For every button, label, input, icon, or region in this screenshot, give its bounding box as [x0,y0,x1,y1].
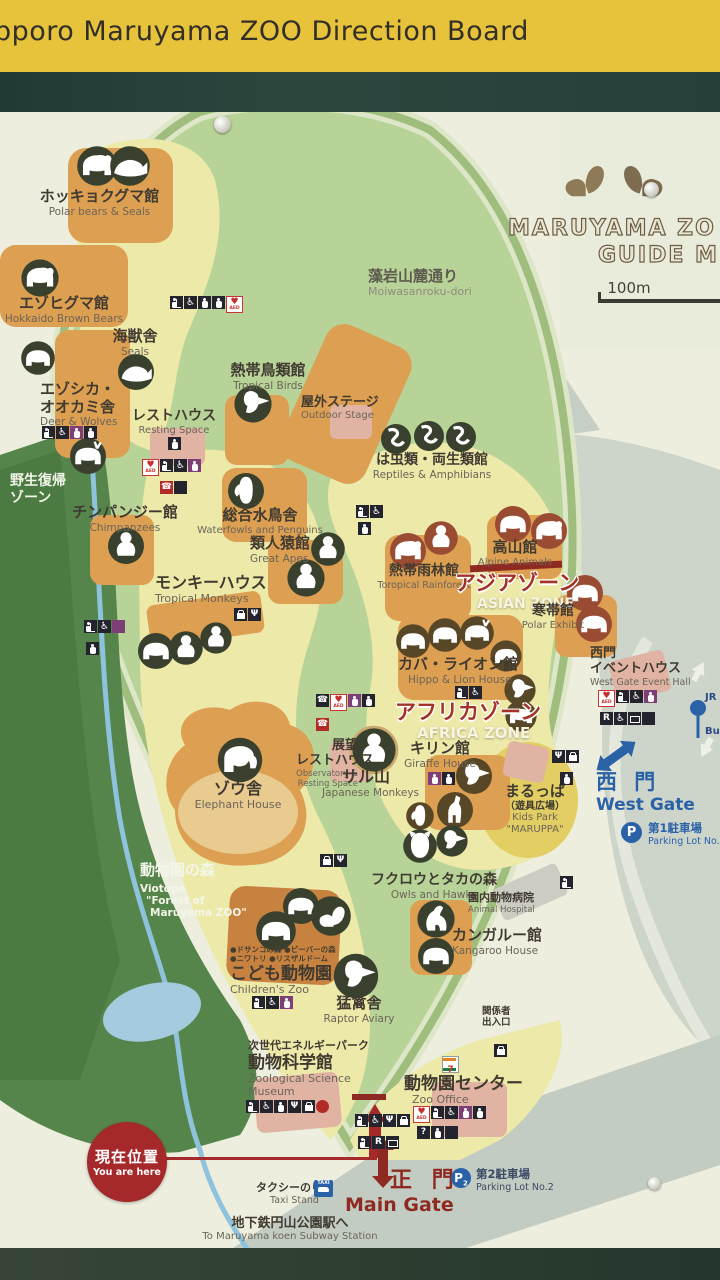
restaurant-icon: Ψ [288,1100,301,1113]
parking2-letter: P [454,1171,463,1185]
amenities-deer-wolves: ♿ [42,426,97,439]
board-title: pporo Maruyama ZOO Direction Board [0,16,529,47]
accessible-icon: ♿ [469,686,482,699]
nursing-icon [348,694,361,707]
fork-glyph: Ψ [251,609,259,619]
vending-icon [174,481,187,494]
west-event-hall-en: West Gate Event Hall [590,677,691,688]
label-giraffe: キリン館 Giraffe House [398,740,482,770]
hippo-lion-ja: カバ・ライオン館 [398,656,518,674]
west-event-hall-ja2: イベントハウス [590,661,691,676]
great-apes-ja: 類人猿館 [250,535,310,553]
label-polar-exhibit: 寒帯館 Polar Exhibit [508,603,598,631]
elephant-ja: ゾウ舎 [182,780,294,799]
alpine-ja: 高山館 [468,539,562,557]
fork-glyph: Ψ [386,1115,394,1125]
gibbon-icon [311,532,345,566]
deer-wolves-ja2: オオカミ舎 [40,399,117,417]
board-bolt [644,182,659,197]
label-zoo-office: 動物園センター Zoo Office [404,1074,523,1107]
shop-icon [302,1100,315,1113]
label-great-apes: 類人猿館 Great Apes [250,535,310,565]
amenities-kids-park2 [560,772,573,785]
toilet-icon [42,426,55,439]
brown-bear-icon [21,259,58,296]
label-west-event-hall: 西門 イベントハウス West Gate Event Hall [590,646,691,688]
aed-text: AED [227,307,242,311]
accessible-icon: ♿ [445,1106,458,1119]
animal-hospital-en: Animal Hospital [468,905,535,915]
parking2-ja: 第2駐車場 [476,1168,554,1182]
raptor-ja: 猛禽舎 [316,995,402,1013]
accessible-icon: ♿ [260,1100,273,1113]
childrens-zoo-legend2: ●ニワトリ ●リスザルドーム [230,955,336,964]
water-fountain-icon [362,694,375,707]
tapir-icon [396,624,430,658]
label-waterfowls: 総合水鳥舎 Waterfowls and Penguins [196,507,324,536]
toilet-icon [356,505,369,518]
kangaroo-icon [417,900,454,937]
label-staff-entrance: 関係者 出入口 [482,1006,511,1028]
monkey-house-en: Tropical Monkeys [155,593,267,606]
toilet-icon [616,690,629,703]
giraffe-ja: キリン館 [398,740,482,758]
resting-space-en: Resting Space [130,425,218,437]
kangaroo-en: Kangaroo House [452,945,542,957]
amenities-resting-1 [168,437,181,450]
amenities-hippo: ♿ [455,686,482,699]
main-gate-en: Main Gate [345,1194,460,1216]
water-fountain-icon [168,437,181,450]
lion-icon [428,618,462,652]
chimpanzees-en: Chimpanzees [70,522,180,534]
label-brown-bears: エゾヒグマ館 Hokkaido Brown Bears [0,295,128,325]
amenities-zoo-office-2: ? [417,1126,458,1139]
label-childrens-zoo: ●ドサンコの森 ●ビーバーの森 ●ニワトリ ●リスザルドーム こども動物園 Ch… [230,946,336,997]
penguin-icon [228,473,264,509]
amenities-zoo-office-1: AED ♿ [413,1106,486,1123]
elephant-icon [218,738,262,782]
info-mark: ? [421,1127,426,1137]
amenities-kids-park: Ψ [552,750,579,763]
toilet-icon [252,996,265,1009]
label-science-museum: 次世代エネルギーパーク 動物科学館 Zoological Science Mus… [248,1040,369,1099]
logo-line2: GUIDE M [598,243,719,269]
raptor-en: Raptor Aviary [316,1013,402,1025]
amenities-museum: ♿ Ψ [246,1100,329,1113]
restaurant-icon: Ψ [248,608,261,621]
aed-text: AED [414,1117,429,1121]
toilet-icon [170,296,183,309]
accessible-icon: ♿ [369,1114,382,1127]
reptiles-en: Reptiles & Amphibians [368,469,496,481]
info-icon: ? [417,1126,430,1139]
hawk-icon [436,825,467,856]
accessible-icon: ♿ [184,296,197,309]
snake-icon [446,422,476,452]
tropical-birds-en: Tropical Birds [212,380,324,392]
label-tropical-birds: 熱帯鳥類館 Tropical Birds [212,362,324,392]
amenities-resting-2: AED ♿ [142,459,201,476]
aed-icon: AED [413,1106,430,1123]
aed-icon: AED [330,694,347,711]
amenities-west-hall-1: AED ♿ [598,690,657,707]
label-africa-zone: アフリカゾーン AFRICA ZONE [395,700,541,742]
stamp-logo-icon [316,1100,329,1113]
amenities-resting-3: ☎ [160,481,187,494]
subway-en: To Maruyama koen Subway Station [200,1231,380,1243]
amenities-gate-2: R [358,1136,399,1149]
childrens-zoo-ja: こども動物園 [230,964,336,984]
water-fountain-icon [442,772,455,785]
photo-spot-icon [628,712,641,725]
aed-icon: AED [598,690,615,707]
amenities-observatory-2: ☎ [316,718,329,731]
amenities-observatory-1: ☎ AED [316,694,375,711]
phone-icon: ☎ [316,694,329,707]
biotope-en2: "Forest of [146,895,247,907]
seals-ja: 海獣舎 [95,328,175,346]
west-gate-en: West Gate [596,795,695,815]
you-are-here-marker: 現在位置 You are here [87,1122,167,1202]
you-are-here-ja: 現在位置 [95,1146,159,1167]
parking2-icon: P2 [451,1168,471,1188]
staff-entrance-ja1: 関係者 [482,1006,511,1017]
nursing-icon [70,426,83,439]
label-hippo-lion: カバ・ライオン館 Hippo & Lion House [398,656,518,686]
wild-return-ja1: 野生復帰 [10,473,66,490]
board-bolt [214,116,231,133]
animal-hospital-ja: 園内動物病院 [468,892,535,905]
aed-icon: AED [226,296,243,313]
subway-ja: 地下鉄円山公園駅へ [200,1216,380,1231]
label-deer-wolves: エゾシカ・ オオカミ舎 Deer & Wolves [40,381,117,429]
toilet-icon [246,1100,259,1113]
aed-icon: AED [142,459,159,476]
amenities-monkey-house: Ψ [234,608,261,621]
lemur-icon [200,622,231,653]
polar-bears-ja: ホッキョクグマ館 [27,188,172,206]
label-chimpanzees: チンパンジー館 Chimpanzees [70,504,180,534]
squirrel-icon [311,896,351,936]
harbor-seal-icon [118,354,154,390]
scale-bar-tick [598,292,601,303]
board-bolt [648,1177,661,1190]
africa-zone-ja: アフリカゾーン [395,700,541,725]
phone-icon: ☎ [160,481,173,494]
nursing-icon [274,1100,287,1113]
observatory-ja1: 展望 [296,738,358,753]
scale-bar [598,299,720,303]
recycle-letter: R [375,1137,382,1147]
label-monkey-house: モンキーハウス Tropical Monkeys [155,574,267,606]
science-museum-en2: Museum [248,1086,369,1099]
vending-icon [112,620,125,633]
gecko-icon [414,421,444,451]
nursing-icon [428,772,441,785]
am enities-gate-1: ♿ Ψ [355,1114,410,1127]
water-fountain-icon [84,426,97,439]
water-fountain-icon [212,296,225,309]
polar-exhibit-ja: 寒帯館 [508,603,598,620]
intl-phone-icon: ☎ [316,718,329,731]
giraffe-en: Giraffe House [398,758,482,770]
label-polar-bears: ホッキョクグマ館 Polar bears & Seals [27,188,172,218]
monkey-mountain-ja: サル山 [322,768,410,787]
label-parking1: 第1駐車場 Parking Lot No.1 [648,822,720,847]
meerkat-icon [406,802,434,830]
label-elephant: ゾウ舎 Elephant House [182,780,294,812]
seals-en: Seals [95,346,175,358]
fork-glyph: Ψ [555,751,563,761]
taxi-icon-label: TAXI [314,1180,333,1187]
board-frame-top [0,72,720,112]
chimpanzees-ja: チンパンジー館 [70,504,180,522]
direction-board-photo: pporo Maruyama ZOO Direction Board MARUY… [0,0,720,1280]
wild-return-ja2: ゾーン [10,490,66,507]
first-aid-icon [473,1106,486,1119]
you-are-here-en: You are here [93,1167,161,1178]
main-gate-ja: 正 門 [390,1168,460,1194]
accessible-icon: ♿ [370,505,383,518]
biotope-en1: Viotope [140,883,247,895]
amenities-left-mid: ♿ [84,620,125,633]
label-jr-bus: JR Bu [705,692,720,738]
jr-bus-line1: JR [705,692,720,704]
label-kangaroo: カンガルー館 Kangaroo House [452,927,542,957]
west-event-hall-ja1: 西門 [590,646,691,661]
label-resting-space: レストハウス Resting Space [130,408,218,436]
wombat-icon [418,938,454,974]
recycle-icon: R [372,1136,385,1149]
amenities-giraffe [428,772,455,785]
owl-icon [403,829,437,863]
eagle-icon [334,954,378,998]
label-main-gate: 正 門 Main Gate [390,1168,460,1216]
header-banner: pporo Maruyama ZOO Direction Board [0,0,720,72]
shop-icon [566,750,579,763]
asian-zone-ja: アジアゾーン [455,571,579,596]
water-fountain-icon [431,1126,444,1139]
label-subway: 地下鉄円山公園駅へ To Maruyama koen Subway Statio… [200,1216,380,1243]
toilet-icon [160,459,173,472]
amenities-elephant-se: Ψ [320,854,347,867]
label-alpine: 高山館 Alpine Animals [468,539,562,568]
photo-spot-icon [386,1136,399,1149]
biotope-ja: 動物園の森 [140,862,247,880]
label-animal-hospital: 園内動物病院 Animal Hospital [468,892,535,915]
polar-exhibit-en: Polar Exhibit [508,620,598,632]
label-seals: 海獣舎 Seals [95,328,175,358]
kangaroo-ja: カンガルー館 [452,927,542,945]
nursing-icon [280,996,293,1009]
rainforest-gibbon-icon [424,521,458,555]
parking2-number: 2 [463,1179,468,1187]
restaurant-icon: Ψ [552,750,565,763]
label-wild-return-zone: 野生復帰 ゾーン [10,473,66,506]
aed-text: AED [331,705,346,709]
recycle-letter: R [603,713,610,723]
label-outdoor-stage: 屋外ステージ Outdoor Stage [301,395,379,422]
aed-text: AED [599,701,614,705]
toilet-icon [355,1114,368,1127]
owls-hawks-ja: フクロウとタカの森 [368,872,500,889]
accessible-icon: ♿ [174,459,187,472]
zoo-office-ja: 動物園センター [404,1074,523,1094]
lesser-panda-icon [495,506,531,542]
amenities-rainforest-west2 [358,522,371,535]
parking1-en: Parking Lot No.1 [648,836,720,847]
brown-bears-en: Hokkaido Brown Bears [0,313,128,325]
accessible-icon: ♿ [56,426,69,439]
kids-park-en2: "MARUPPA" [492,824,578,836]
nursing-icon [188,459,201,472]
monkey-house-ja: モンキーハウス [155,574,267,593]
polar-bears-en: Polar bears & Seals [27,206,172,218]
toilet-icon [358,1136,371,1149]
label-monkey-mountain: サル山 Japanese Monkeys [322,768,410,799]
amenities-staff [494,1044,507,1057]
nursing-icon [459,1106,472,1119]
road-label: 藻岩山麓通り Moiwasanroku-dori [368,268,472,299]
amenities-west-hall-2: R ♿ [600,712,655,725]
accessible-icon: ♿ [614,712,627,725]
elephant-en: Elephant House [182,799,294,812]
science-museum-ja2: 動物科学館 [248,1053,369,1073]
science-museum-ja1: 次世代エネルギーパーク [248,1040,369,1053]
parking1-ja: 第1駐車場 [648,822,720,836]
label-biotope: 動物園の森 Viotope "Forest of Maruyama ZOO" [140,862,247,920]
aed-text: AED [143,470,158,474]
toilet-icon [84,620,97,633]
tropical-birds-ja: 熱帯鳥類館 [212,362,324,380]
shop-icon [397,1114,410,1127]
shop-icon [494,1044,507,1057]
kids-park-en1: Kids Park [492,812,578,824]
deer-icon [70,438,106,474]
amenities-left-mid2 [86,642,99,655]
taxi-stand-icon: TAXI [314,1180,333,1197]
chameleon-icon [381,424,411,454]
west-gate-ja: 西 門 [596,770,695,795]
kids-park-ja2: （遊具広場） [492,801,578,813]
first-aid-icon [86,642,99,655]
shop-icon [320,854,333,867]
water-fountain-icon [560,772,573,785]
seven-digit: 7 [447,1065,453,1075]
board-frame-bottom [0,1248,720,1280]
kids-park-ja1: まるっぱ [492,783,578,801]
parking2-en: Parking Lot No.2 [476,1182,554,1193]
alpine-en: Alpine Animals [468,557,562,569]
parking1-letter: P [627,825,637,840]
accessible-icon: ♿ [266,996,279,1009]
brown-bears-ja: エゾヒグマ館 [0,295,128,313]
nursing-icon [644,690,657,703]
biotope-en3: Maruyama ZOO" [150,907,247,919]
amenities-children: ♿ [252,996,293,1009]
outdoor-stage-ja: 屋外ステージ [301,395,379,410]
seven-eleven-icon: 7 [442,1056,459,1073]
accessible-icon: ♿ [630,690,643,703]
scale-label: 100m [598,280,660,298]
shop-icon [234,608,247,621]
monkey-mountain-en: Japanese Monkeys [322,787,410,799]
toilet-icon [455,686,468,699]
fork-glyph: Ψ [337,855,345,865]
jr-bus-line2: Bu [705,726,720,738]
toilet-icon [431,1106,444,1119]
label-parking2: 第2駐車場 Parking Lot No.2 [476,1168,554,1193]
label-raptor: 猛禽舎 Raptor Aviary [316,995,402,1025]
reptiles-ja: は虫類・両生類館 [368,452,496,469]
road-ja: 藻岩山麓通り [368,268,472,286]
great-apes-en: Great Apes [250,553,310,565]
resting-space-ja: レストハウス [130,408,218,425]
road-en: Moiwasanroku-dori [368,286,472,299]
locker-icon [445,1126,458,1139]
recycle-icon: R [600,712,613,725]
waterfowls-ja: 総合水鳥舎 [196,507,324,525]
label-kids-park: まるっぱ （遊具広場） Kids Park "MARUPPA" [492,783,578,836]
giraffe-icon [437,792,473,828]
staff-entrance-ja2: 出入口 [482,1017,511,1028]
seal-icon [110,146,150,186]
deer-wolves-ja1: エゾシカ・ [40,381,117,399]
you-are-here-line [165,1157,377,1160]
fork-glyph: Ψ [291,1101,299,1111]
accessible-icon: ♿ [98,620,111,633]
outdoor-stage-en: Outdoor Stage [301,410,379,422]
amenities-east-toilet [560,876,573,889]
label-west-gate: 西 門 West Gate [596,770,695,815]
locker-icon [642,712,655,725]
wolf-icon [21,341,55,375]
hippo-lion-en: Hippo & Lion House [408,674,518,686]
monkey-icon [169,631,203,665]
amenities-polar-bears: ♿ AED [170,296,243,313]
toilet-icon [560,876,573,889]
restaurant-icon: Ψ [334,854,347,867]
eland-icon [460,616,494,650]
parking1-icon: P [621,822,642,843]
restaurant-icon: Ψ [383,1114,396,1127]
amenities-rainforest-west: ♿ [356,505,383,518]
label-reptiles: は虫類・両生類館 Reptiles & Amphibians [368,452,496,481]
baboon-icon [138,633,174,669]
logo-line1: MARUYAMA ZO [508,216,716,242]
nursing-icon [198,296,211,309]
nursing-icon [358,522,371,535]
